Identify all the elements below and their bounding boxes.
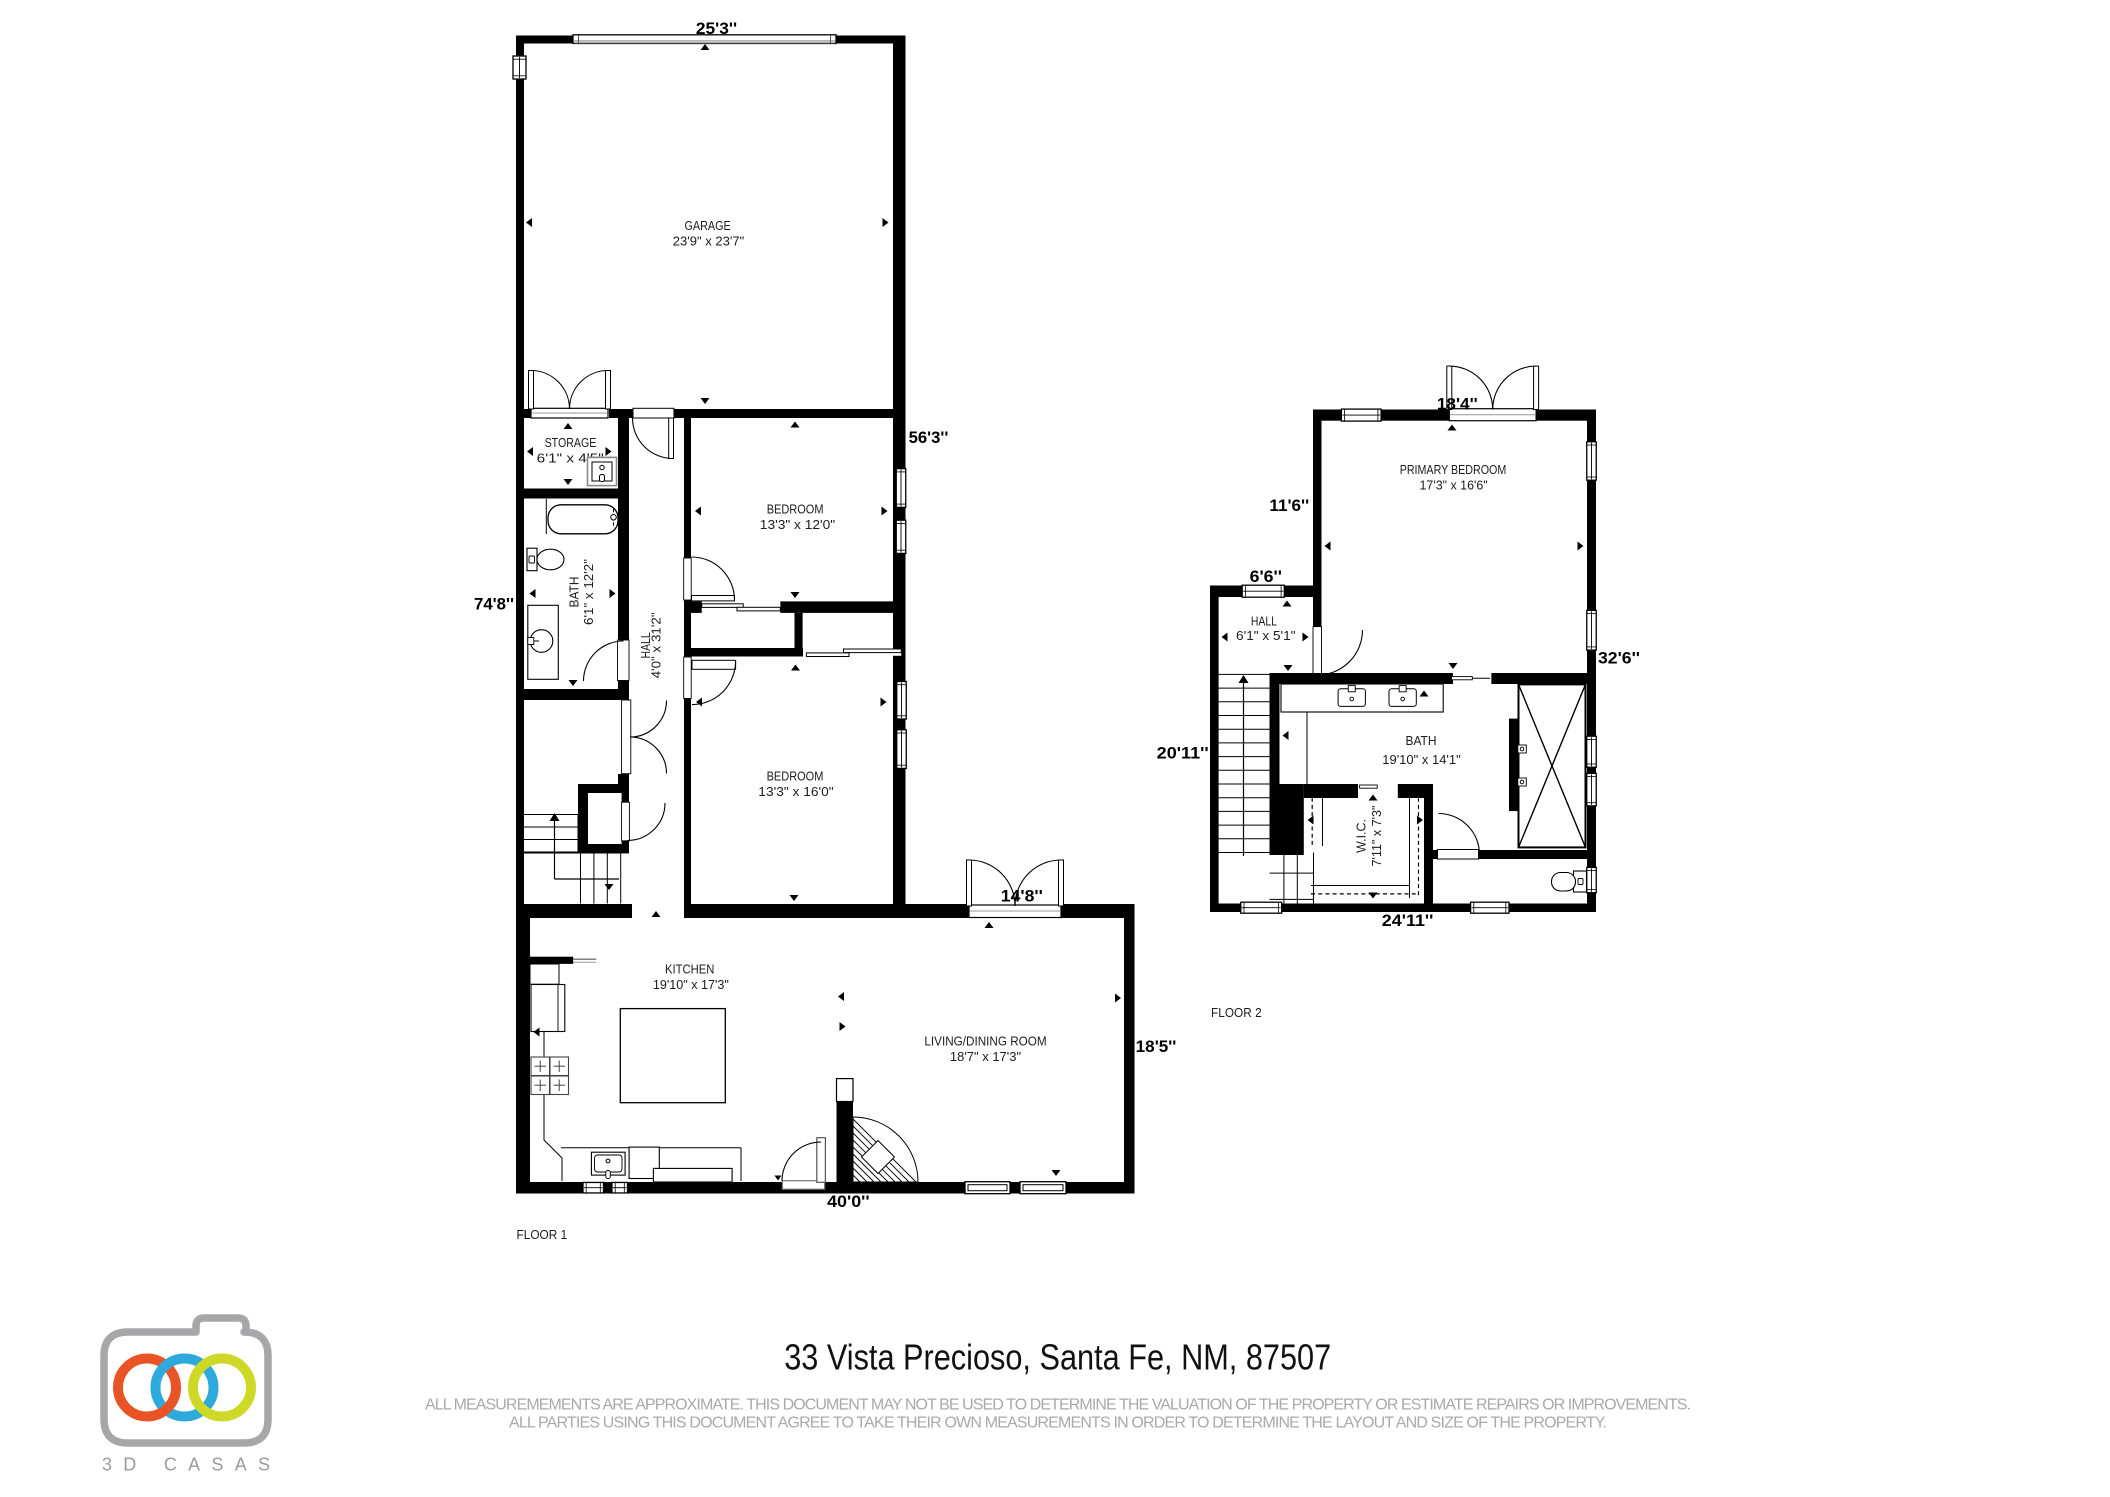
svg-text:KITCHEN: KITCHEN: [665, 963, 714, 977]
svg-text:FLOOR 1: FLOOR 1: [517, 1228, 568, 1242]
svg-text:STORAGE: STORAGE: [545, 436, 597, 450]
svg-text:6'6'': 6'6'': [1250, 568, 1282, 586]
svg-text:25'3'': 25'3'': [696, 20, 737, 38]
svg-text:56'3'': 56'3'': [909, 429, 949, 447]
svg-text:33 Vista Precioso, Santa Fe, N: 33 Vista Precioso, Santa Fe, NM, 87507: [784, 1337, 1331, 1378]
svg-text:BATH: BATH: [567, 577, 581, 608]
svg-text:7'11" x 7'3": 7'11" x 7'3": [1370, 806, 1384, 867]
svg-text:19'10" x 14'1": 19'10" x 14'1": [1382, 753, 1461, 767]
svg-text:74'8'': 74'8'': [474, 596, 514, 614]
svg-text:32'6'': 32'6'': [1598, 649, 1640, 667]
svg-text:11'6'': 11'6'': [1269, 497, 1309, 515]
svg-text:40'0'': 40'0'': [827, 1193, 870, 1211]
svg-text:PRIMARY BEDROOM: PRIMARY BEDROOM: [1400, 463, 1507, 477]
svg-text:ALL PARTIES USING THIS DOCUMEN: ALL PARTIES USING THIS DOCUMENT AGREE TO…: [509, 1415, 1607, 1432]
svg-text:ALL MEASUREMEMENTS ARE APPROXI: ALL MEASUREMEMENTS ARE APPROXIMATE. THIS…: [425, 1397, 1691, 1414]
svg-text:18'4'': 18'4'': [1437, 395, 1478, 413]
svg-text:13'3" x 12'0": 13'3" x 12'0": [760, 518, 835, 532]
svg-text:17'3" x 16'6": 17'3" x 16'6": [1420, 479, 1488, 493]
svg-text:14'8'': 14'8'': [1001, 888, 1043, 906]
svg-text:LIVING/DINING ROOM: LIVING/DINING ROOM: [924, 1035, 1046, 1049]
svg-text:19'10" x 17'3": 19'10" x 17'3": [653, 978, 729, 992]
svg-text:BEDROOM: BEDROOM: [767, 503, 824, 517]
svg-text:18'7" x 17'3": 18'7" x 17'3": [950, 1050, 1021, 1064]
svg-text:23'9" x 23'7": 23'9" x 23'7": [673, 234, 745, 248]
svg-text:13'3" x 16'0": 13'3" x 16'0": [758, 785, 833, 799]
svg-text:HALL: HALL: [1251, 614, 1277, 628]
svg-text:20'11'': 20'11'': [1157, 744, 1209, 762]
svg-text:GARAGE: GARAGE: [684, 219, 730, 233]
svg-text:W.I.C.: W.I.C.: [1354, 819, 1368, 853]
svg-text:6'1" x 5'1": 6'1" x 5'1": [1236, 629, 1296, 643]
svg-text:18'5'': 18'5'': [1136, 1038, 1177, 1056]
svg-text:6'1" x 12'2": 6'1" x 12'2": [582, 559, 596, 625]
svg-text:BATH: BATH: [1406, 734, 1437, 748]
svg-text:BEDROOM: BEDROOM: [767, 770, 824, 784]
svg-text:4'0" x 31'2": 4'0" x 31'2": [650, 612, 664, 678]
svg-text:FLOOR 2: FLOOR 2: [1211, 1006, 1262, 1020]
svg-text:24'11'': 24'11'': [1382, 912, 1434, 930]
